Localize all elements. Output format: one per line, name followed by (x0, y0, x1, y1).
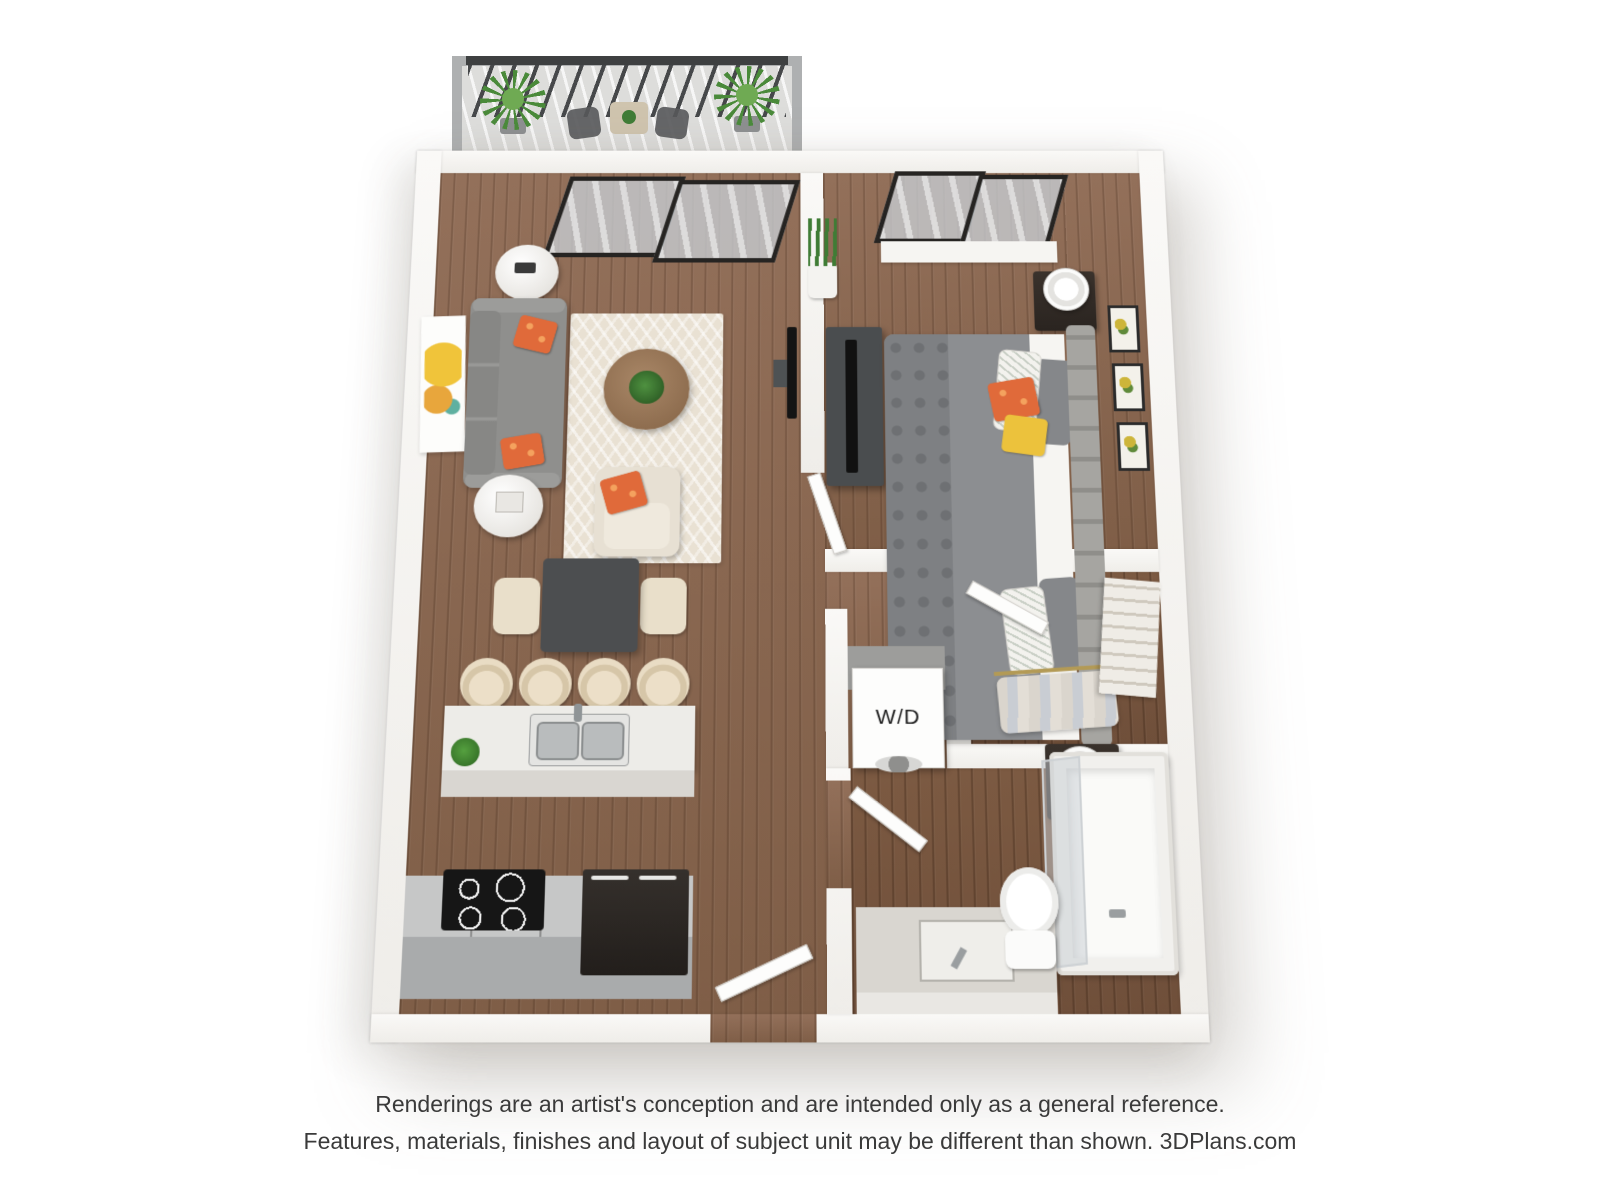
wall-art (420, 316, 466, 453)
sofa-pillow-bottom (500, 432, 546, 470)
floorplan-stage: W/D Renderings are an artist's conceptio… (0, 0, 1600, 1200)
washer-dryer-door (875, 756, 922, 772)
toilet-tank (1005, 930, 1057, 968)
dining-chair-left (492, 578, 540, 635)
bathtub-faucet (1109, 909, 1126, 917)
bedroom-window (873, 171, 1065, 244)
dining-chair-right (640, 578, 687, 635)
wall-frame-1 (1107, 305, 1140, 352)
sofa (463, 298, 568, 488)
bedroom-plant-icon (808, 218, 837, 266)
bedroom-window-sill (881, 241, 1058, 262)
sofa-pillow-top (512, 314, 559, 354)
refrigerator-handle-left (591, 876, 629, 880)
balcony-chair-right (654, 106, 690, 140)
cooktop (441, 869, 546, 930)
sink-basin-right (581, 722, 625, 760)
balcony-chair-left (566, 106, 602, 140)
living-room-tv (787, 327, 797, 419)
washer-dryer-label: W/D (876, 706, 921, 730)
sliding-door-pane-right (652, 180, 800, 263)
kitchen-island-front (441, 770, 695, 797)
disclaimer: Renderings are an artist's conception an… (0, 1086, 1600, 1160)
balcony-plant-right-icon (714, 66, 780, 126)
bedroom-tv (845, 340, 858, 473)
wall-frame-3 (1116, 422, 1150, 471)
balcony-sliding-door (543, 177, 798, 258)
closet-shelves (1099, 578, 1161, 698)
washer-dryer: W/D (852, 668, 945, 768)
disclaimer-line-2: Features, materials, finishes and layout… (0, 1123, 1600, 1160)
sink-basin-left (536, 722, 580, 760)
bedroom-plant-pot (808, 263, 837, 299)
balcony-table (610, 102, 648, 134)
wall-north (416, 151, 1164, 173)
balcony-railing (466, 56, 788, 65)
entry-door-opening (710, 1014, 816, 1042)
kitchen-faucet (574, 704, 583, 722)
wall-frame-2 (1112, 363, 1145, 411)
apartment-unit: W/D (370, 151, 1210, 1043)
refrigerator (580, 869, 689, 975)
side-table-tray (495, 492, 524, 513)
wall-laundry-west (825, 609, 848, 768)
bathroom-vanity-front (857, 993, 1058, 1015)
lamp-north (1042, 268, 1090, 311)
sofa-back-cushions (463, 311, 501, 475)
bed-pillow-yellow (1001, 414, 1048, 457)
disclaimer-line-1: Renderings are an artist's conception an… (0, 1086, 1600, 1123)
balcony-plant-left-icon (480, 70, 546, 130)
refrigerator-handle-right (639, 876, 677, 880)
side-table-decor (514, 263, 536, 274)
dining-table (540, 558, 639, 652)
balcony (452, 56, 802, 164)
